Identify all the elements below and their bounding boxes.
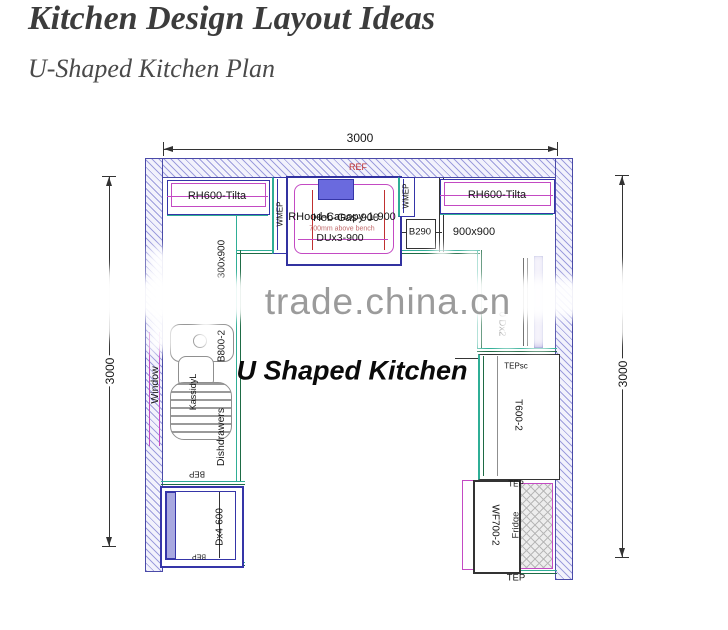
- page-subtitle: U-Shaped Kitchen Plan: [28, 54, 275, 84]
- dishdrawers-label: Dishdrawers: [215, 408, 227, 466]
- pantry-door-line: [497, 356, 498, 476]
- bench-edge: [161, 481, 245, 482]
- ref-label: REF: [349, 162, 367, 172]
- corner-300-label: 300x900: [217, 240, 228, 278]
- tep-bottom-label: TEP: [507, 573, 525, 584]
- screenshot: Kitchen Design Layout Ideas U-Shaped Kit…: [0, 0, 728, 630]
- bench-edge: [161, 484, 245, 485]
- fridge-label: Fridge: [511, 512, 522, 539]
- rh600-left-label: RH600-Tilta: [188, 190, 246, 202]
- dim-arrow-down: [106, 537, 112, 546]
- sink-brand-label: KassidyL: [188, 374, 198, 411]
- bep-bottom-label: BEP: [192, 553, 206, 560]
- page-title: Kitchen Design Layout Ideas: [28, 0, 435, 38]
- wmep-right-label: WMEP: [402, 184, 411, 209]
- dim-tick: [102, 546, 116, 547]
- dim-top-line: [163, 149, 557, 150]
- cabinet-line: [167, 215, 268, 216]
- dim-arrow-up: [106, 177, 112, 186]
- dim-arrow-down: [619, 548, 625, 557]
- du-label: DUx3-900: [316, 232, 363, 244]
- window-label: Window: [149, 366, 161, 403]
- tep-top-label: TEP: [508, 480, 524, 489]
- watermark-text: trade.china.cn: [265, 281, 511, 323]
- cabinet-line: [440, 214, 553, 215]
- bench-edge: [236, 216, 237, 482]
- bep-top-label: BEP: [189, 470, 205, 479]
- tepsc-label: TEPsc: [504, 362, 528, 371]
- dim-arrow-up: [619, 176, 625, 185]
- wmep-left-label: WMEP: [276, 202, 285, 227]
- canopy-label: RHood-Canopy-1-900: [288, 211, 396, 223]
- dim-top-label: 3000: [345, 131, 376, 145]
- dim-tick: [557, 142, 558, 156]
- oven-door-strip: [166, 492, 176, 559]
- b800-label: B800-2: [217, 330, 228, 362]
- dim-tick: [615, 557, 629, 558]
- fridge-hatch: [517, 483, 553, 569]
- cabinet-line: [483, 356, 484, 476]
- t600-label: T600-2: [513, 399, 524, 431]
- rh600-right-label: RH600-Tilta: [468, 189, 526, 201]
- rangehood-fill: [318, 179, 354, 200]
- dx4-label: Dx4-600: [215, 508, 226, 546]
- b290-label: B290: [409, 227, 431, 238]
- bench-edge: [477, 351, 557, 352]
- dim-left-label: 3000: [103, 356, 117, 387]
- plan-title: U Shaped Kitchen: [236, 356, 467, 387]
- corner-900-label: 900x900: [453, 226, 495, 238]
- dim-arrow-right: [548, 146, 557, 152]
- dim-right-label: 3000: [616, 359, 630, 390]
- dim-arrow-left: [164, 146, 173, 152]
- wf700-label: WF700-2: [490, 504, 501, 545]
